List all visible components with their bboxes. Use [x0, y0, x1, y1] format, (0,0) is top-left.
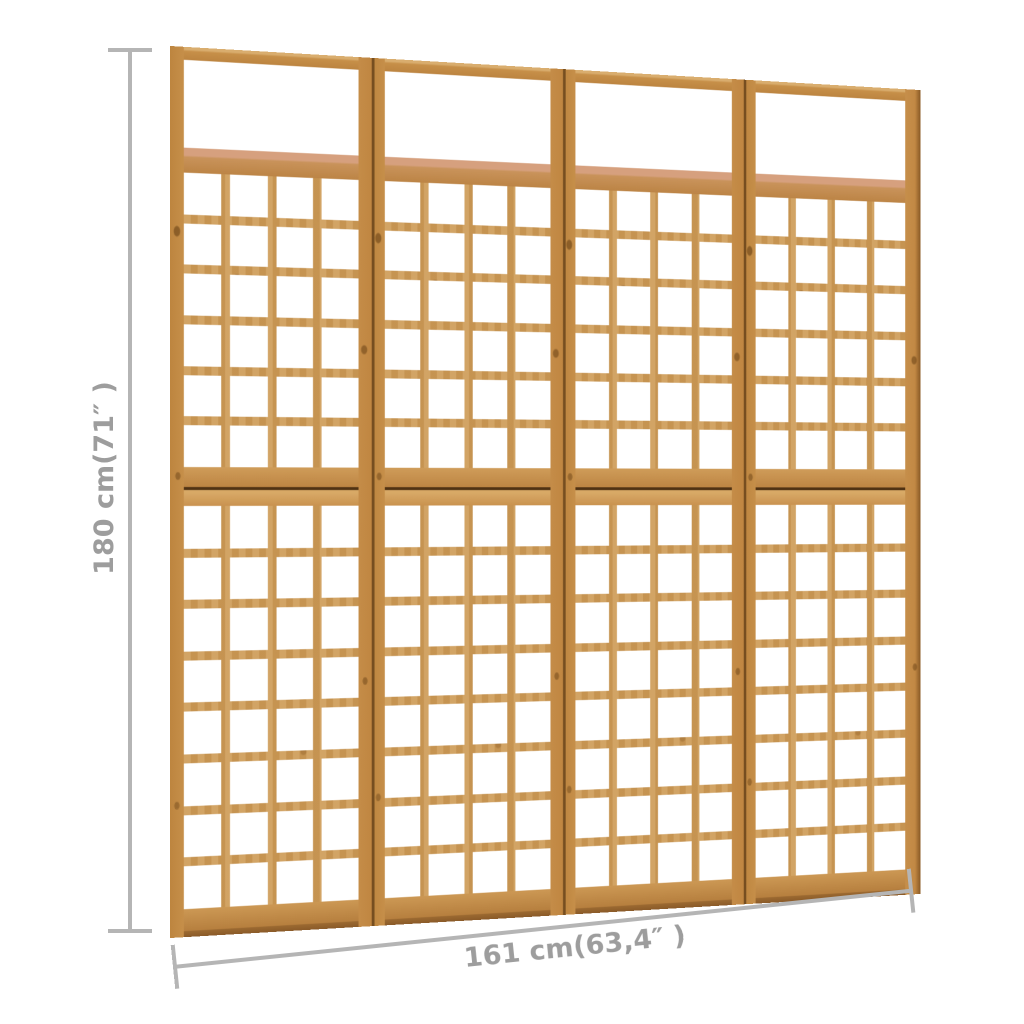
lattice-hole: [322, 657, 358, 700]
lattice-hole: [658, 794, 691, 835]
lattice-hole: [385, 329, 421, 370]
lattice-hole: [699, 696, 732, 737]
lattice-hole: [835, 692, 867, 732]
panel-frame: [184, 47, 358, 937]
lattice-hole: [835, 739, 867, 779]
lattice-hole: [796, 431, 828, 469]
lattice-hole: [230, 376, 267, 418]
lattice-hole: [658, 505, 691, 545]
lattice-hole: [472, 282, 507, 323]
lattice-hole: [385, 655, 421, 697]
lattice-hole: [276, 226, 313, 268]
lattice-hole: [658, 649, 691, 690]
lattice-hole: [756, 552, 788, 592]
lattice-hole: [796, 693, 828, 733]
lattice-hole: [658, 553, 691, 593]
panel-frame: [756, 80, 905, 903]
lattice-hole: [796, 198, 828, 237]
lattice-hole: [472, 653, 507, 695]
lattice-hole: [276, 506, 313, 548]
lattice-hole: [385, 755, 421, 798]
lattice-hole: [276, 556, 313, 598]
lattice-hole: [658, 240, 691, 280]
lattice-hole: [756, 695, 788, 735]
lattice-hole: [658, 382, 691, 421]
lattice-hole: [617, 747, 651, 788]
lattice-hole: [515, 849, 550, 891]
lattice-hole: [322, 858, 358, 902]
panel-mid-rail-upper: [385, 468, 550, 488]
lattice-hole: [756, 647, 788, 687]
lattice-hole: [472, 185, 507, 226]
lattice-hole: [385, 605, 421, 647]
lattice-hole: [385, 705, 421, 747]
lattice-hole: [756, 789, 788, 830]
lattice-hole: [796, 835, 828, 876]
lattice-hole: [699, 553, 732, 593]
lattice-hole: [575, 602, 609, 643]
trellis-grid-lower: [184, 506, 358, 910]
lattice-hole: [874, 202, 905, 241]
panel-frame: [385, 59, 550, 926]
trellis-grid-upper: [385, 181, 550, 468]
divider-panel: [563, 69, 744, 915]
lattice-hole: [617, 699, 651, 740]
divider-panel: [170, 46, 371, 938]
lattice-hole: [835, 833, 867, 873]
room-divider: [170, 46, 921, 938]
lattice-hole: [658, 745, 691, 786]
lattice-hole: [874, 551, 905, 590]
lattice-hole: [617, 239, 651, 279]
lattice-hole: [699, 336, 732, 375]
lattice-hole: [658, 335, 691, 375]
lattice-hole: [835, 645, 867, 685]
lattice-hole: [617, 795, 651, 837]
lattice-hole: [276, 607, 313, 650]
lattice-hole: [472, 379, 507, 419]
lattice-hole: [756, 197, 788, 237]
lattice-hole: [429, 428, 464, 468]
panel-mid-rail-upper: [756, 469, 905, 488]
lattice-hole: [322, 606, 358, 648]
lattice-hole: [472, 801, 507, 843]
lattice-hole: [230, 761, 267, 805]
lattice-hole: [322, 707, 358, 750]
lattice-hole: [276, 426, 313, 467]
lattice-hole: [472, 428, 507, 468]
trellis-grid-upper: [575, 189, 732, 469]
lattice-hole: [276, 376, 313, 417]
lattice-hole: [835, 385, 867, 423]
lattice-hole: [429, 505, 464, 546]
lattice-hole: [230, 863, 267, 907]
lattice-hole: [874, 248, 905, 287]
lattice-hole: [184, 711, 222, 755]
lattice-hole: [617, 286, 651, 326]
lattice-hole: [472, 331, 507, 372]
lattice-hole: [184, 425, 222, 467]
lattice-hole: [230, 325, 267, 367]
lattice-hole: [835, 505, 867, 544]
lattice-hole: [658, 287, 691, 327]
lattice-hole: [835, 431, 867, 469]
lattice-hole: [575, 333, 609, 373]
height-dimension-label: 180 cm(71″ ): [89, 367, 121, 589]
lattice-hole: [322, 427, 358, 468]
lattice-hole: [276, 326, 313, 368]
lattice-hole: [184, 865, 222, 909]
lattice-hole: [385, 181, 421, 223]
lattice-hole: [575, 505, 609, 545]
lattice-hole: [756, 600, 788, 640]
lattice-hole: [699, 840, 732, 881]
lattice-hole: [699, 289, 732, 329]
lattice-hole: [617, 382, 651, 422]
lattice-hole: [575, 554, 609, 595]
lattice-hole: [575, 700, 609, 741]
lattice-hole: [699, 383, 732, 422]
divider-panel: [371, 58, 562, 926]
lattice-hole: [472, 604, 507, 645]
lattice-hole: [617, 191, 651, 231]
lattice-hole: [515, 235, 550, 276]
lattice-hole: [575, 846, 609, 888]
lattice-hole: [756, 243, 788, 282]
product-dimension-image: 180 cm(71″ ): [0, 0, 1024, 1024]
lattice-hole: [874, 831, 905, 871]
lattice-hole: [184, 173, 222, 216]
lattice-hole: [385, 279, 421, 320]
panel-mid-rail-upper: [184, 467, 358, 487]
lattice-hole: [617, 505, 651, 545]
lattice-hole: [322, 228, 358, 270]
lattice-hole: [699, 505, 732, 545]
trellis-grid-lower: [575, 505, 732, 888]
panel-mid-rail-lower: [575, 490, 732, 505]
lattice-hole: [515, 380, 550, 420]
lattice-hole: [699, 744, 732, 785]
lattice-hole: [617, 334, 651, 374]
lattice-hole: [874, 784, 905, 824]
lattice-hole: [575, 237, 609, 277]
lattice-hole: [385, 230, 421, 272]
lattice-hole: [874, 645, 905, 684]
lattice-hole: [429, 853, 464, 896]
panel-open-window: [756, 92, 905, 180]
lattice-hole: [575, 285, 609, 325]
lattice-hole: [429, 803, 464, 846]
lattice-hole: [756, 430, 788, 469]
lattice-hole: [874, 294, 905, 333]
lattice-hole: [429, 555, 464, 596]
lattice-hole: [874, 386, 905, 424]
lattice-hole: [276, 176, 313, 218]
lattice-hole: [796, 646, 828, 686]
lattice-hole: [575, 748, 609, 790]
lattice-hole: [385, 805, 421, 848]
lattice-hole: [796, 384, 828, 423]
lattice-hole: [515, 603, 550, 644]
lattice-hole: [699, 792, 732, 833]
lattice-hole: [515, 283, 550, 324]
product-photo: [170, 46, 1010, 938]
panel-open-window: [184, 60, 358, 156]
lattice-hole: [429, 654, 464, 696]
lattice-hole: [515, 750, 550, 792]
lattice-hole: [322, 757, 358, 800]
panel-open-window: [385, 71, 550, 164]
lattice-hole: [796, 245, 828, 284]
panel-open-window: [575, 82, 732, 172]
lattice-hole: [835, 598, 867, 637]
lattice-hole: [429, 330, 464, 371]
lattice-hole: [184, 814, 222, 858]
lattice-hole: [756, 290, 788, 329]
lattice-hole: [575, 429, 609, 469]
lattice-hole: [756, 337, 788, 376]
lattice-hole: [184, 324, 222, 366]
lattice-hole: [472, 233, 507, 274]
lattice-hole: [276, 759, 313, 802]
lattice-hole: [429, 281, 464, 322]
lattice-hole: [515, 800, 550, 842]
lattice-hole: [515, 652, 550, 693]
lattice-hole: [184, 660, 222, 703]
lattice-hole: [276, 860, 313, 904]
lattice-hole: [322, 556, 358, 598]
lattice-hole: [756, 384, 788, 423]
lattice-hole: [472, 555, 507, 596]
lattice-hole: [276, 658, 313, 701]
lattice-hole: [796, 552, 828, 591]
lattice-hole: [756, 505, 788, 544]
lattice-hole: [230, 275, 267, 317]
lattice-hole: [385, 855, 421, 898]
lattice-hole: [835, 246, 867, 285]
lattice-hole: [874, 598, 905, 637]
lattice-hole: [699, 648, 732, 688]
panel-frame: [575, 70, 732, 914]
lattice-hole: [658, 842, 691, 884]
lattice-hole: [230, 608, 267, 651]
lattice-hole: [230, 812, 267, 856]
panel-mid-rail-lower: [756, 490, 905, 505]
lattice-hole: [575, 189, 609, 230]
lattice-hole: [658, 430, 691, 469]
lattice-hole: [472, 752, 507, 794]
lattice-hole: [699, 194, 732, 234]
lattice-hole: [617, 553, 651, 593]
lattice-hole: [322, 178, 358, 220]
lattice-hole: [184, 608, 222, 651]
lattice-hole: [874, 505, 905, 544]
lattice-hole: [472, 505, 507, 546]
lattice-hole: [617, 429, 651, 468]
divider-panel: [744, 80, 921, 905]
lattice-hole: [429, 605, 464, 647]
trellis-grid-lower: [756, 505, 905, 878]
lattice-hole: [515, 428, 550, 468]
lattice-hole: [874, 691, 905, 731]
lattice-hole: [874, 431, 905, 469]
lattice-hole: [658, 697, 691, 738]
lattice-hole: [385, 555, 421, 597]
trellis-grid-upper: [184, 173, 358, 468]
lattice-hole: [385, 378, 421, 419]
lattice-hole: [322, 808, 358, 851]
lattice-hole: [515, 701, 550, 743]
lattice-hole: [184, 375, 222, 417]
lattice-hole: [575, 381, 609, 421]
lattice-hole: [230, 659, 267, 702]
lattice-hole: [230, 506, 267, 548]
panel-mid-rail-upper: [575, 468, 732, 487]
lattice-hole: [575, 651, 609, 692]
lattice-hole: [184, 274, 222, 316]
lattice-hole: [796, 599, 828, 639]
lattice-hole: [699, 241, 732, 281]
lattice-hole: [230, 175, 267, 218]
lattice-hole: [699, 601, 732, 641]
panel-mid-rail-lower: [184, 490, 358, 506]
lattice-hole: [385, 427, 421, 468]
lattice-hole: [796, 338, 828, 377]
lattice-hole: [515, 332, 550, 372]
lattice-hole: [429, 704, 464, 746]
lattice-hole: [575, 797, 609, 839]
lattice-hole: [230, 426, 267, 467]
lattice-hole: [835, 339, 867, 378]
lattice-hole: [322, 327, 358, 368]
lattice-hole: [429, 379, 464, 420]
lattice-hole: [617, 650, 651, 691]
lattice-hole: [835, 786, 867, 826]
lattice-hole: [835, 292, 867, 331]
lattice-hole: [472, 851, 507, 894]
lattice-hole: [472, 703, 507, 745]
lattice-hole: [658, 601, 691, 641]
lattice-hole: [230, 710, 267, 753]
lattice-hole: [184, 506, 222, 549]
lattice-hole: [276, 810, 313, 854]
lattice-hole: [617, 602, 651, 643]
lattice-hole: [835, 200, 867, 239]
lattice-hole: [756, 837, 788, 878]
lattice-hole: [835, 552, 867, 591]
lattice-hole: [429, 183, 464, 225]
lattice-hole: [230, 557, 267, 600]
lattice-hole: [796, 741, 828, 781]
lattice-hole: [184, 223, 222, 266]
lattice-hole: [276, 708, 313, 751]
lattice-hole: [617, 844, 651, 886]
lattice-hole: [184, 557, 222, 600]
lattice-hole: [429, 754, 464, 796]
panel-mid-rail-lower: [385, 490, 550, 506]
lattice-hole: [874, 738, 905, 778]
lattice-hole: [796, 788, 828, 828]
height-dimension-line: [128, 48, 132, 933]
lattice-hole: [515, 554, 550, 595]
lattice-hole: [515, 505, 550, 546]
lattice-hole: [184, 762, 222, 806]
lattice-hole: [874, 340, 905, 378]
trellis-grid-upper: [756, 197, 905, 470]
lattice-hole: [276, 276, 313, 318]
lattice-hole: [322, 278, 358, 320]
lattice-hole: [429, 232, 464, 273]
trellis-grid-lower: [385, 505, 550, 898]
lattice-hole: [322, 506, 358, 548]
lattice-hole: [699, 430, 732, 469]
lattice-hole: [385, 505, 421, 546]
lattice-hole: [515, 187, 550, 228]
lattice-hole: [322, 377, 358, 418]
lattice-hole: [796, 505, 828, 544]
lattice-hole: [658, 193, 691, 233]
lattice-hole: [230, 225, 267, 267]
lattice-hole: [796, 291, 828, 330]
lattice-hole: [756, 742, 788, 783]
